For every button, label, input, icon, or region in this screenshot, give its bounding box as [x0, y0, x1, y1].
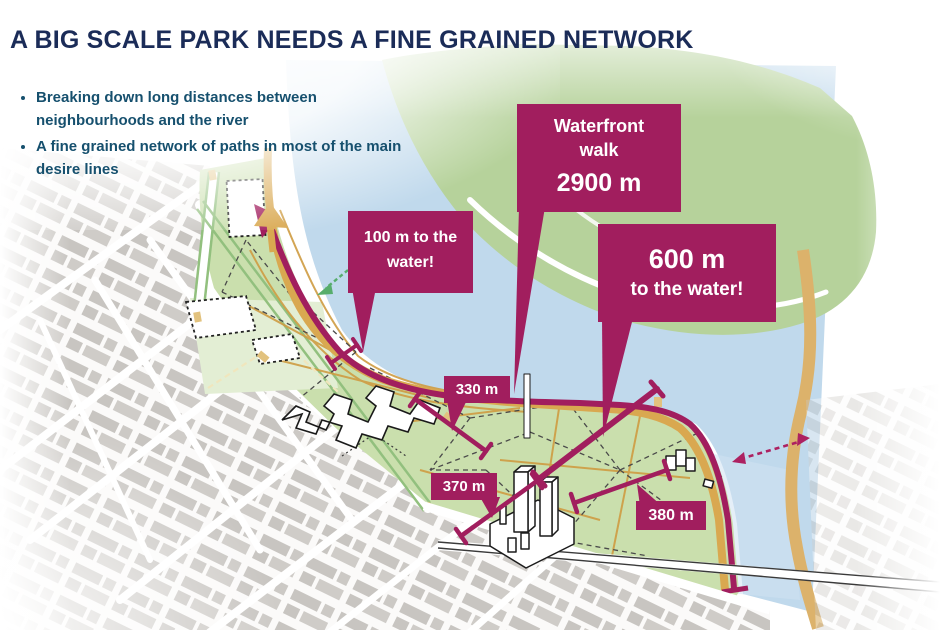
- slide-canvas: A BIG SCALE PARK NEEDS A FINE GRAINED NE…: [0, 0, 940, 630]
- callout-text: 100 m to the: [348, 226, 473, 251]
- observation-spire: [524, 374, 530, 438]
- callout-100m-to-water: 100 m to the water!: [348, 211, 473, 293]
- label-330m: 330 m: [444, 376, 510, 403]
- label-370m: 370 m: [431, 473, 497, 500]
- bullet-item: A fine grained network of paths in most …: [36, 135, 404, 182]
- callout-text: walk: [517, 138, 681, 162]
- callout-text: to the water!: [598, 279, 776, 301]
- bullet-item: Breaking down long distances between nei…: [36, 86, 404, 133]
- callout-600m-to-water: 600 m to the water!: [598, 224, 776, 322]
- small-hut: [703, 479, 714, 488]
- label-380m: 380 m: [636, 501, 706, 530]
- callout-text: Waterfront: [517, 114, 681, 138]
- slide-title: A BIG SCALE PARK NEEDS A FINE GRAINED NE…: [10, 26, 890, 55]
- slide-bullets: Breaking down long distances between nei…: [14, 86, 404, 183]
- callout-value: 2900 m: [517, 169, 681, 198]
- callout-waterfront-walk: Waterfront walk 2900 m: [517, 104, 681, 212]
- tower-1: [514, 472, 528, 532]
- callout-text: water!: [348, 251, 473, 276]
- callout-value: 600 m: [598, 244, 776, 275]
